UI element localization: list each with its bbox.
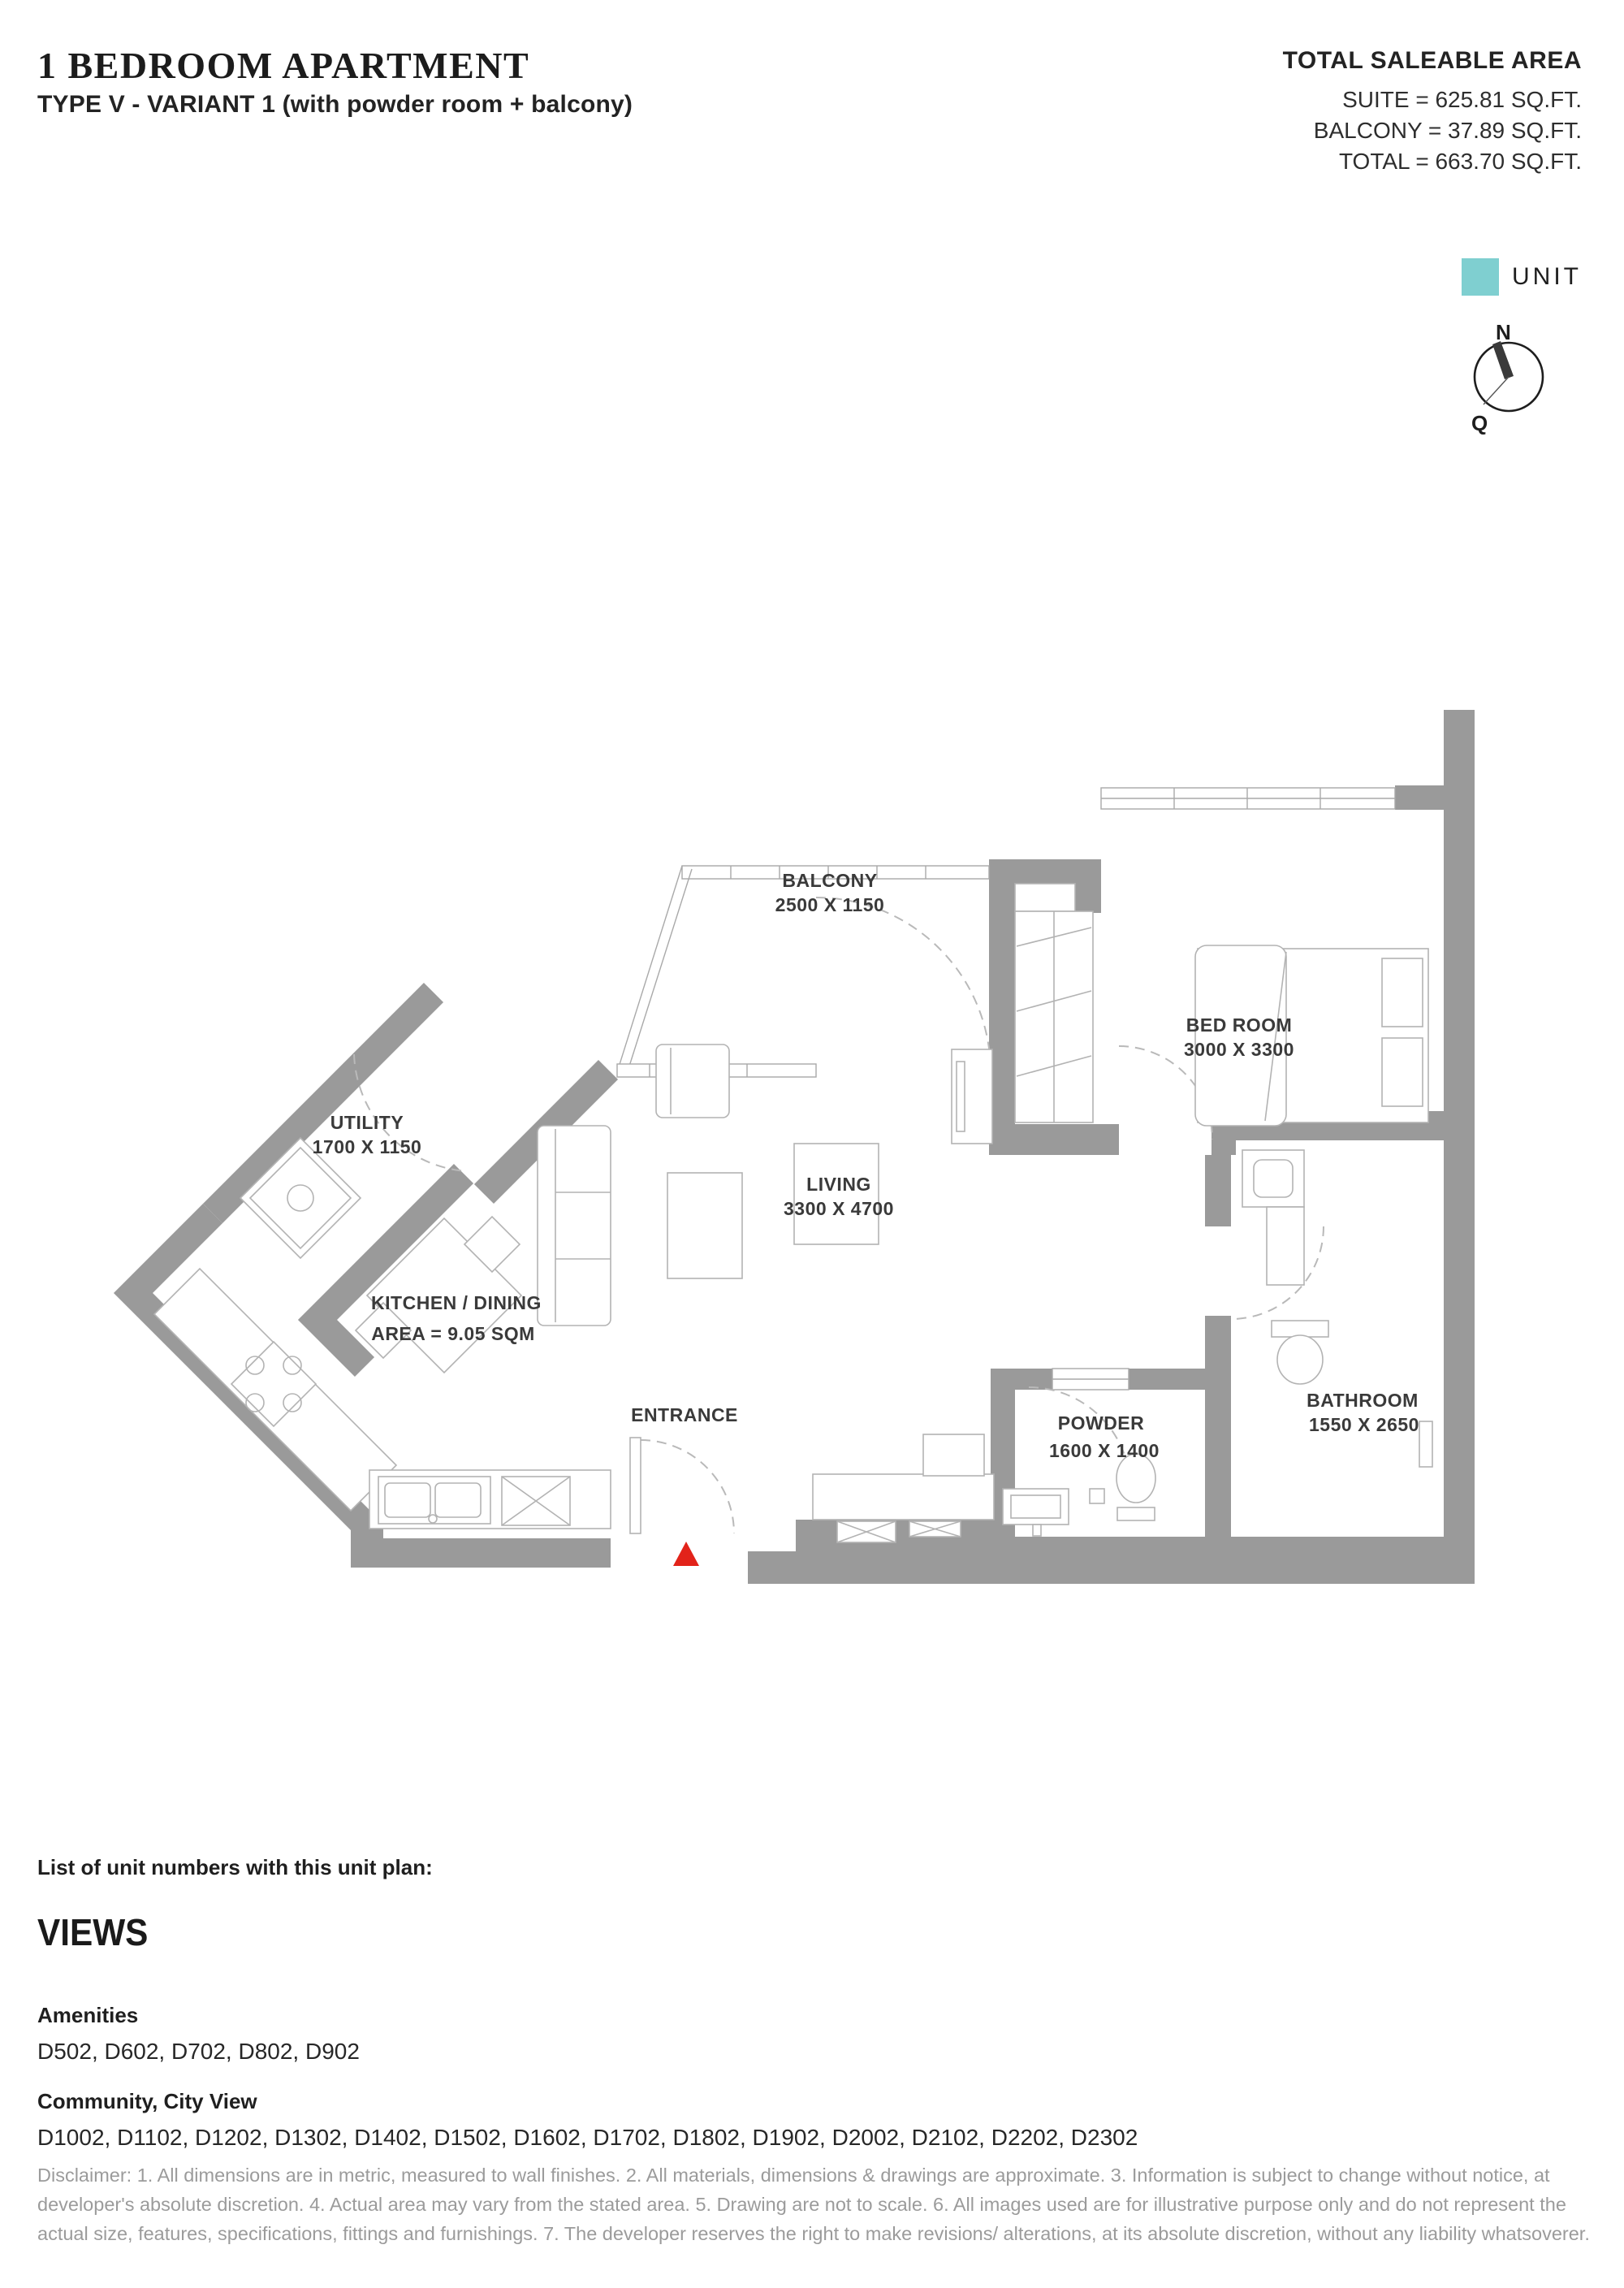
floor-plan: BALCONY 2500 X 1150 BED ROOM 3000 X 3300… [81, 666, 1624, 1641]
room-dim-balcony: 2500 X 1150 [775, 894, 885, 915]
area-suite: SUITE = 625.81 SQ.FT. [1283, 84, 1582, 115]
room-label-entrance: ENTRANCE [631, 1404, 738, 1425]
area-heading: TOTAL SALEABLE AREA [1283, 47, 1582, 75]
compass-q-label: Q [1471, 411, 1488, 435]
bed [1195, 945, 1428, 1126]
closet-niche [1015, 884, 1075, 911]
room-label-kitchen: KITCHEN / DINING [371, 1292, 542, 1313]
compass-needle [1492, 341, 1514, 379]
section-units-amenities: D502, D602, D702, D802, D902 [37, 2039, 360, 2065]
disclaimer-text: Disclaimer: 1. All dimensions are in met… [37, 2160, 1600, 2248]
section-title-amenities: Amenities [37, 2003, 138, 2028]
section-units-community: D1002, D1102, D1202, D1302, D1402, D1502… [37, 2125, 1138, 2151]
room-dim-living: 3300 X 4700 [784, 1198, 894, 1219]
page-title: 1 BEDROOM APARTMENT [37, 44, 529, 87]
room-label-powder: POWDER [1058, 1412, 1145, 1434]
page-subtitle: TYPE V - VARIANT 1 (with powder room + b… [37, 91, 633, 119]
room-label-bedroom: BED ROOM [1186, 1014, 1293, 1036]
unit-legend-label: UNIT [1512, 263, 1582, 291]
powder-toilet [1090, 1454, 1155, 1520]
compass-icon: N Q [1449, 307, 1570, 449]
kitchen-sink [378, 1477, 490, 1524]
area-total: TOTAL = 663.70 SQ.FT. [1283, 146, 1582, 177]
towel-rail [1419, 1421, 1432, 1467]
unit-legend: UNIT [1462, 258, 1582, 296]
total-saleable-area: TOTAL SALEABLE AREA SUITE = 625.81 SQ.FT… [1283, 47, 1582, 177]
room-dim-utility: 1700 X 1150 [313, 1136, 422, 1157]
room-label-utility: UTILITY [330, 1112, 404, 1133]
room-dim-bathroom: 1550 X 2650 [1309, 1414, 1419, 1435]
room-label-balcony: BALCONY [782, 870, 877, 891]
compass-tail [1484, 377, 1509, 404]
entrance-door-leaf [630, 1438, 641, 1533]
section-title-community: Community, City View [37, 2089, 257, 2114]
dishwasher [502, 1477, 570, 1525]
room-dim-kitchen: AREA = 9.05 SQM [371, 1323, 535, 1344]
room-dim-bedroom: 3000 X 3300 [1184, 1039, 1294, 1060]
room-label-bathroom: BATHROOM [1307, 1390, 1419, 1411]
compass-north-label: N [1496, 320, 1511, 344]
coffee-table [667, 1173, 742, 1278]
room-dim-powder: 1600 X 1400 [1049, 1440, 1160, 1461]
unit-swatch-icon [1462, 258, 1499, 296]
bathroom-vanity [1242, 1150, 1304, 1285]
area-balcony: BALCONY = 37.89 SQ.FT. [1283, 115, 1582, 146]
armchair [656, 1045, 729, 1118]
tv-unit [952, 1049, 992, 1144]
unit-list-heading: List of unit numbers with this unit plan… [37, 1855, 433, 1880]
bathroom-toilet [1272, 1321, 1328, 1384]
room-label-living: LIVING [806, 1174, 871, 1195]
entrance-marker-icon [673, 1542, 699, 1566]
views-heading: VIEWS [37, 1910, 148, 1954]
sofa [538, 1126, 611, 1326]
